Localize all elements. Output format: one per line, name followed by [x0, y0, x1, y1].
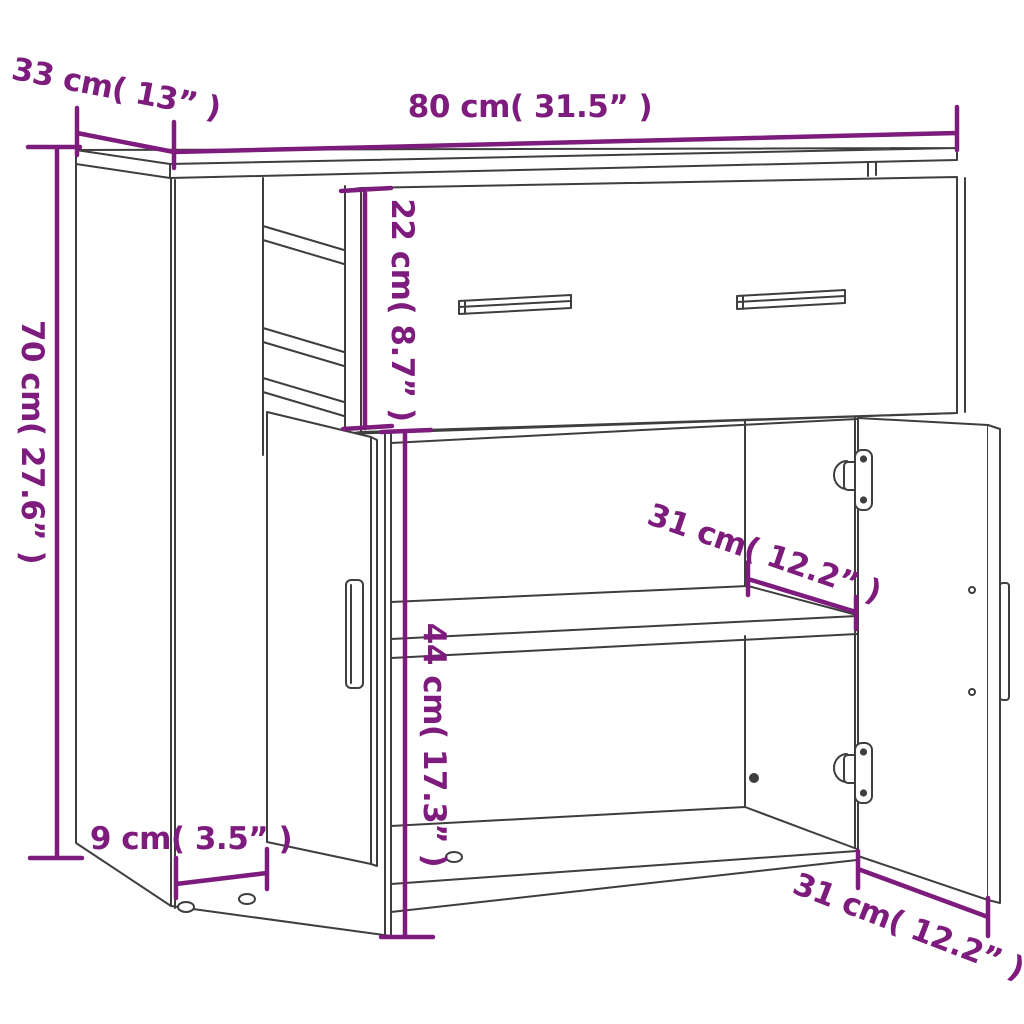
hinge-top [834, 450, 872, 510]
dimension-label-drawer-height: 22 cm( 8.7” ) [384, 198, 420, 421]
cabinet-diagram-canvas: 33 cm( 13” ) 80 cm( 31.5” ) 70 cm( 27.6”… [0, 0, 1024, 1024]
hinge-bottom-screw-2 [861, 790, 866, 795]
back-panel-screw [750, 774, 758, 782]
product-dimension-diagram: 33 cm( 13” ) 80 cm( 31.5” ) 70 cm( 27.6”… [0, 0, 1024, 1024]
dimension-label-height: 70 cm( 27.6” ) [14, 320, 50, 564]
right-door-edge [988, 425, 1000, 903]
left-side-panel [76, 164, 175, 908]
hinge-top-screw-2 [861, 497, 866, 502]
dimension-label-depth: 33 cm( 13” ) [9, 51, 224, 127]
right-door-handle [1000, 583, 1009, 700]
foot-left [178, 902, 194, 912]
right-door-panel [858, 418, 988, 900]
right-door-open [858, 418, 1009, 903]
drawer-side-panel [345, 188, 361, 434]
drawer-front [361, 177, 957, 432]
foot-middle-left [239, 894, 255, 904]
dimension-label-base-height: 9 cm( 3.5” ) [90, 821, 292, 857]
dimension-label-shelf-depth: 31 cm( 12.2” ) [643, 497, 886, 611]
dimension-label-width: 80 cm( 31.5” ) [408, 89, 652, 125]
left-door-handle [346, 580, 363, 688]
open-drawer [345, 177, 957, 434]
hinge-top-screw-1 [861, 456, 866, 461]
middle-shelf [391, 586, 857, 658]
hinge-bottom [834, 743, 872, 803]
dimension-line-depth [77, 108, 174, 168]
dimension-label-compartment-height: 44 cm( 17.3” ) [416, 623, 452, 867]
left-door-open [267, 412, 377, 866]
hinge-bottom-screw-1 [861, 749, 866, 754]
